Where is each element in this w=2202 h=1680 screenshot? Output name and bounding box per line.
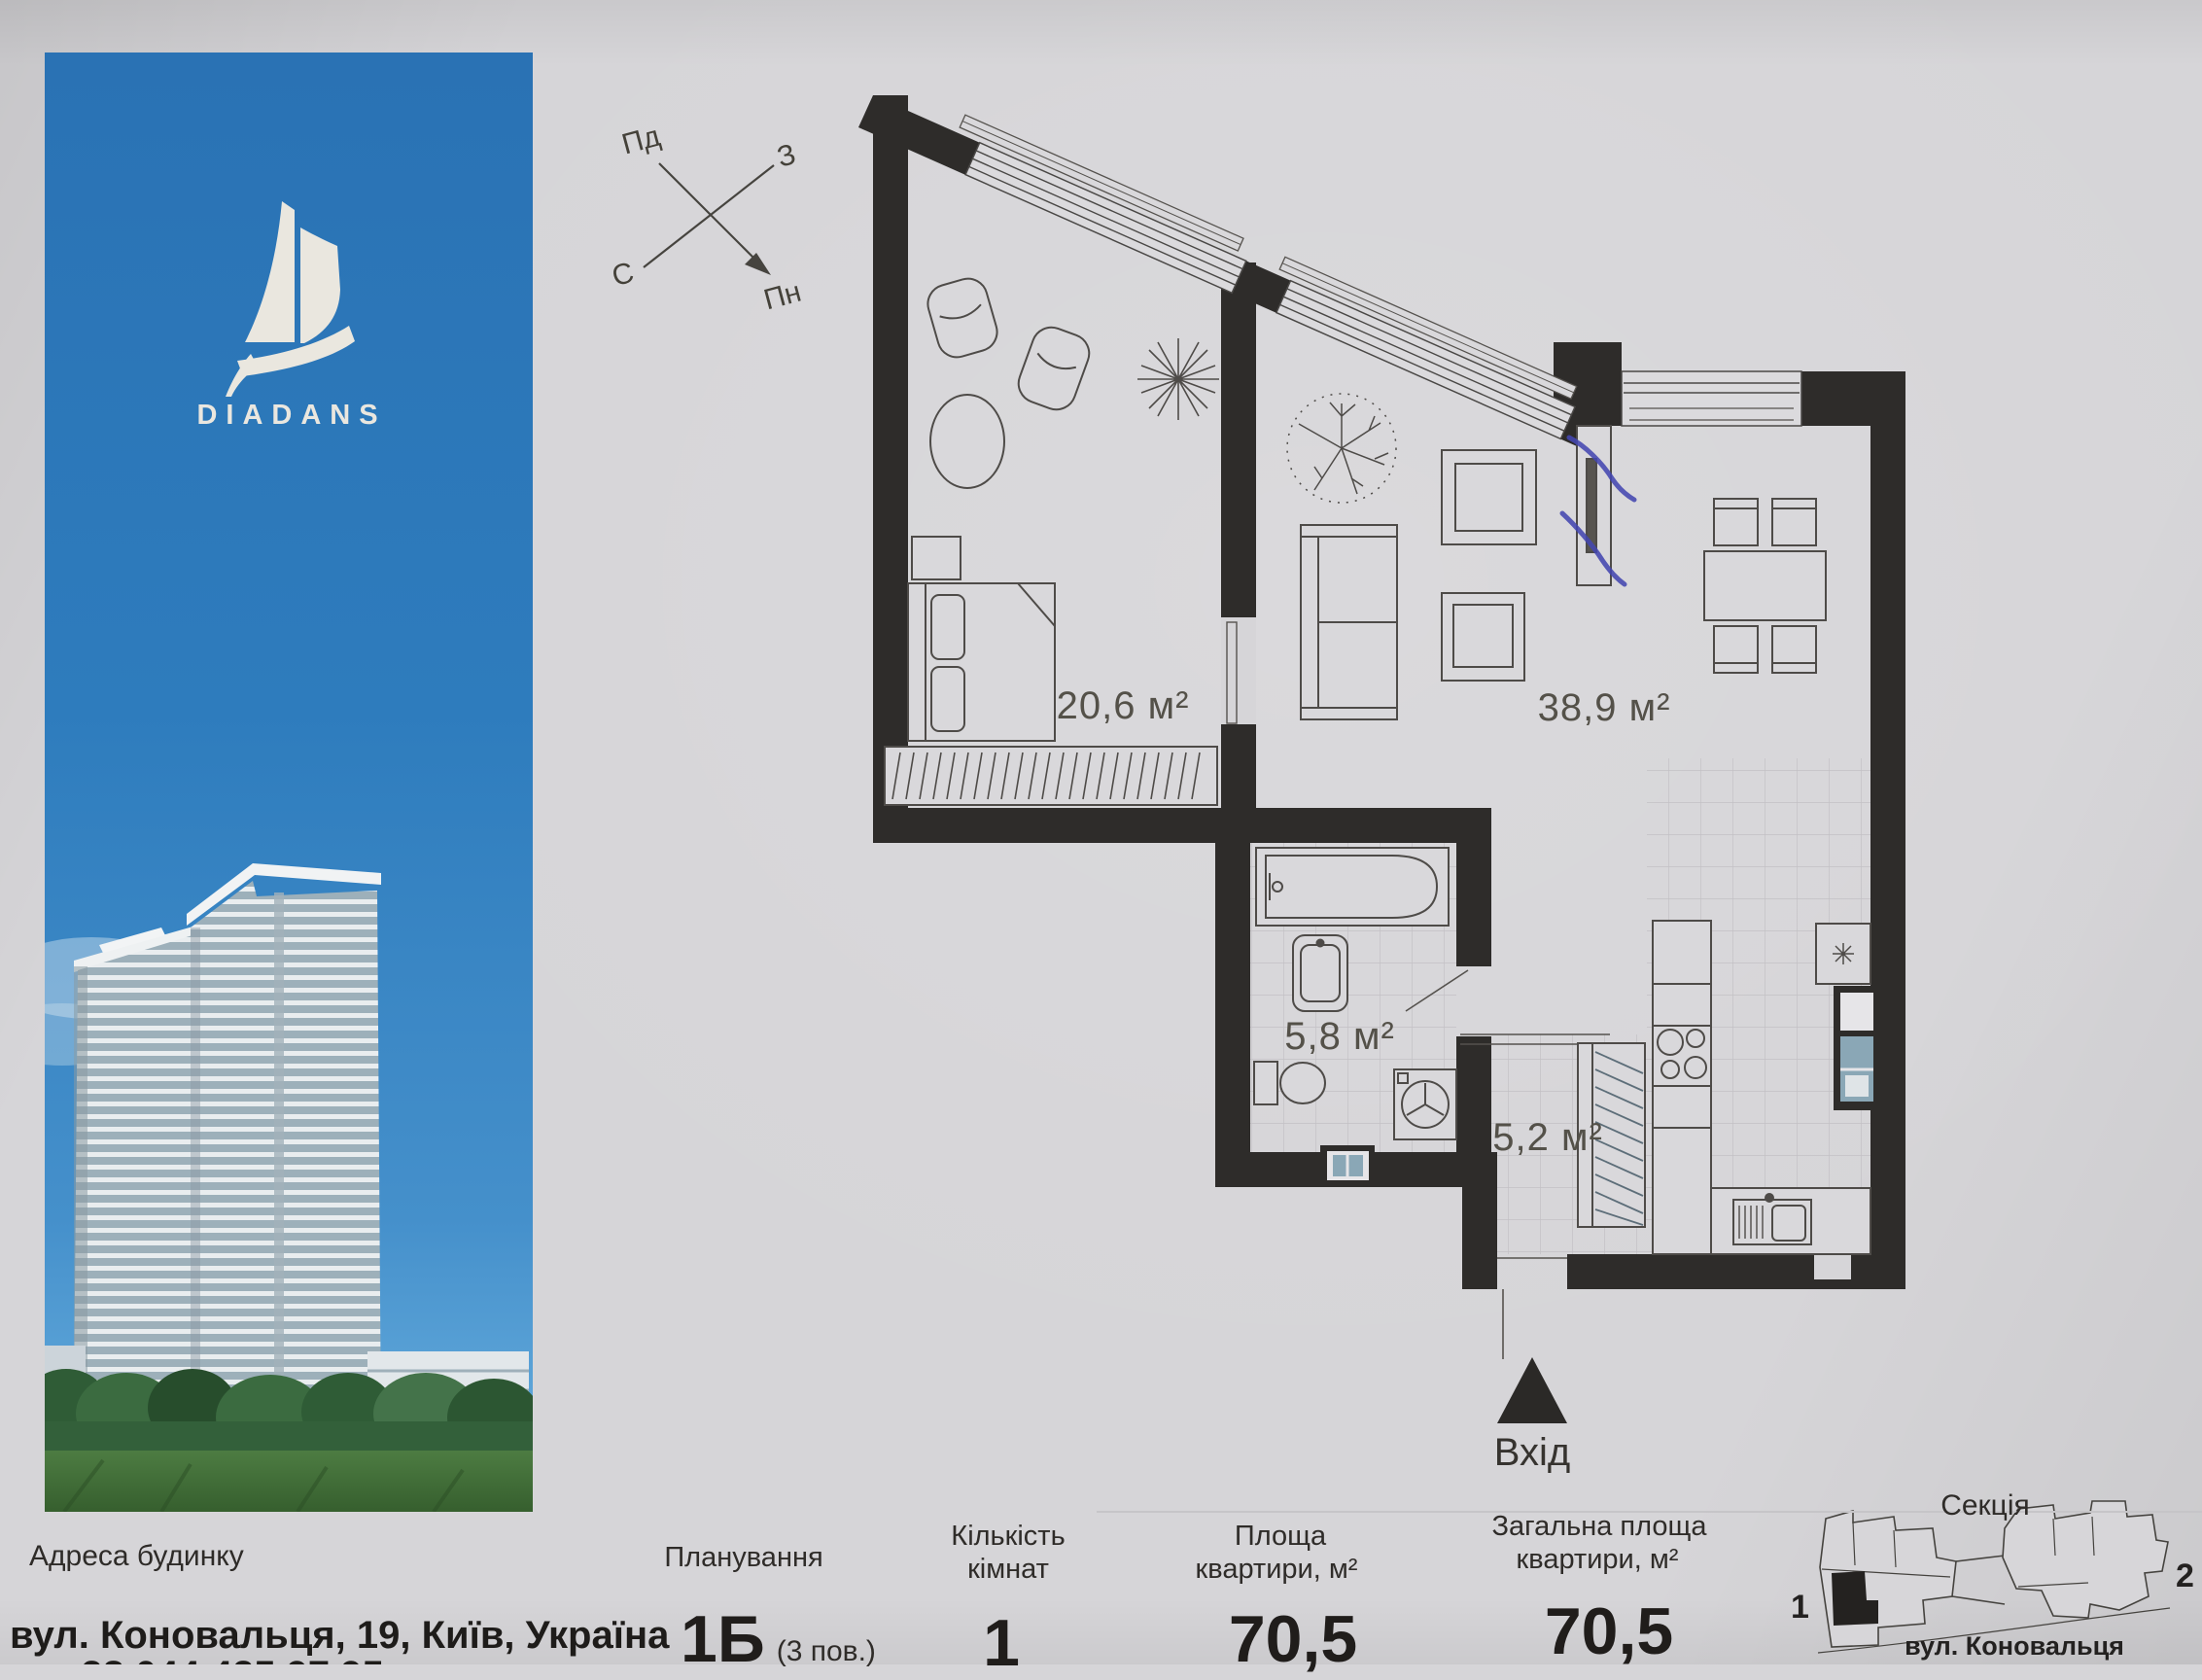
fridge-icon <box>1816 924 1870 984</box>
rooms-label-line1: Кількість <box>951 1522 1065 1551</box>
area-value: 70,5 <box>1229 1606 1357 1672</box>
hallway-area-label: 5,2 м² <box>1492 1118 1603 1157</box>
total-label-line2: квартири, м² <box>1517 1546 1679 1574</box>
bedroom-area-label: 20,6 м² <box>1057 686 1190 725</box>
planning-label: Планування <box>664 1544 822 1572</box>
nightstand-icon <box>912 537 961 579</box>
lounge-chair-icon <box>924 274 1002 362</box>
armchair-icon <box>1442 593 1524 681</box>
floor-plan-drawing <box>0 0 2202 1664</box>
bed-icon <box>908 583 1055 741</box>
compass-rose <box>644 163 774 275</box>
lounge-chair-icon <box>1013 322 1095 415</box>
area-label-line2: квартири, м² <box>1196 1556 1358 1584</box>
section-2-label: 2 <box>2176 1559 2194 1592</box>
pouf-icon <box>930 395 1004 488</box>
dining-set-icon <box>1704 499 1826 673</box>
entrance-arrow-icon <box>1497 1357 1567 1423</box>
planning-value: 1Б <box>681 1606 765 1672</box>
apartment-plan <box>858 95 1905 1423</box>
address-value: вул. Коновальця, 19, Київ, Україна <box>10 1616 669 1655</box>
rooms-value: 1 <box>983 1610 1020 1676</box>
bathroom-area-label: 5,8 м² <box>1284 1017 1395 1056</box>
tree-icon <box>1287 394 1396 503</box>
address-phone-clipped: +38 044 425 97 95 <box>58 1656 739 1664</box>
toilet-icon <box>1254 1062 1325 1104</box>
address-label: Адреса будинку <box>29 1542 244 1571</box>
duct-box-icon <box>1320 1145 1375 1186</box>
section-street-label: вул. Коновальця <box>1905 1633 2124 1660</box>
plant-icon <box>1137 338 1219 420</box>
entrance-label: Вхід <box>1494 1433 1570 1472</box>
windows <box>960 115 1801 438</box>
sink-icon <box>1293 935 1347 1011</box>
total-label-line1: Загальна площа <box>1491 1513 1706 1541</box>
section-1-label: 1 <box>1791 1591 1809 1624</box>
planning-note: (3 пов.) <box>777 1606 876 1668</box>
armchair-icon <box>1442 450 1536 544</box>
vent-shaft-icon <box>1834 986 1880 1110</box>
convector-strip-icon <box>885 747 1217 805</box>
kitchen-sink-icon <box>1733 1194 1811 1244</box>
sofa-icon <box>1301 525 1397 719</box>
washing-machine-icon <box>1394 1069 1456 1139</box>
section-diagram <box>1818 1501 2170 1653</box>
rooms-label-line2: кімнат <box>967 1556 1049 1584</box>
area-label-line1: Площа <box>1235 1522 1326 1551</box>
living-area-label: 38,9 м² <box>1538 688 1671 727</box>
total-value: 70,5 <box>1545 1598 1673 1664</box>
planning-value-group: 1Б (3 пов.) <box>681 1606 876 1672</box>
section-label: Секція <box>1940 1491 2030 1521</box>
bathtub-icon <box>1256 848 1449 926</box>
